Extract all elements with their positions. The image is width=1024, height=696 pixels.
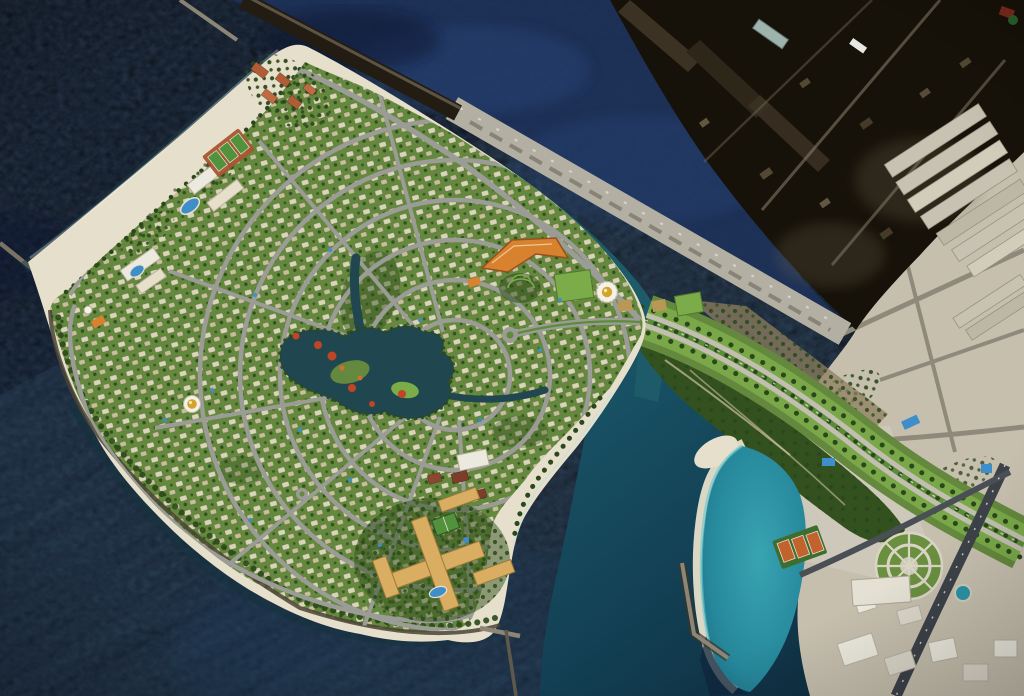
satellite-image: [0, 0, 1024, 696]
vignette: [0, 0, 1024, 696]
satellite-image-stage: [0, 0, 1024, 696]
